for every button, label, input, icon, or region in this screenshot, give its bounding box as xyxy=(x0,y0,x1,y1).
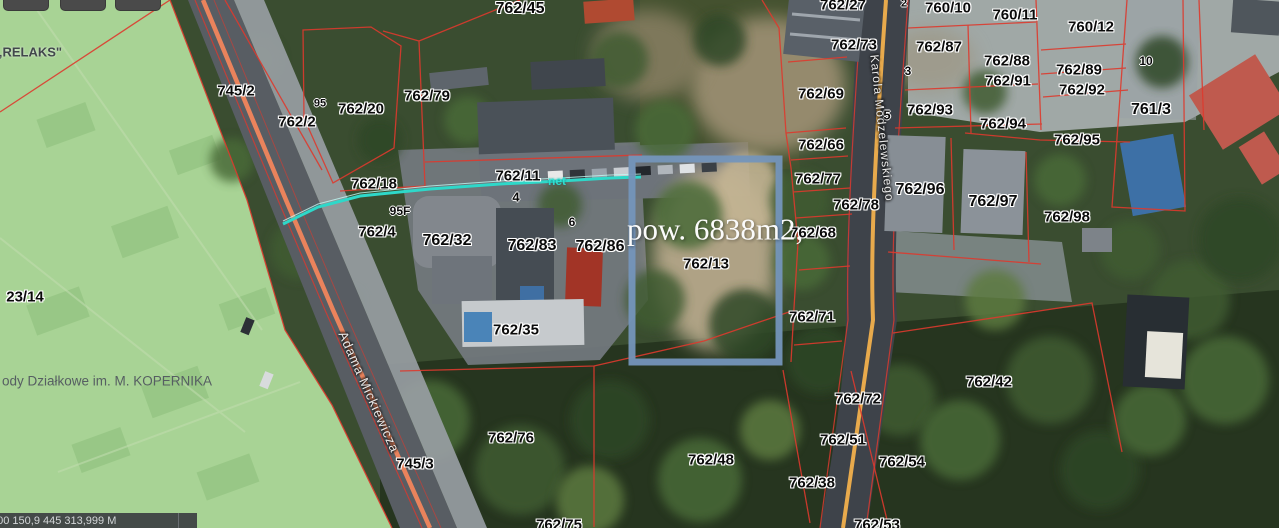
coordinates-readout: 500 150,9 445 313,999 M xyxy=(0,515,116,527)
toolbar-button-2[interactable] xyxy=(60,0,106,11)
statusbar-divider xyxy=(178,513,179,528)
map-viewport[interactable]: „RELAKS"23/14ody Działkowe im. M. KOPERN… xyxy=(0,0,1279,528)
toolbar-button-1[interactable] xyxy=(3,0,49,11)
coordinate-statusbar: 500 150,9 445 313,999 M xyxy=(0,513,197,528)
map-canvas[interactable] xyxy=(0,0,1279,528)
toolbar-button-3[interactable] xyxy=(115,0,161,11)
